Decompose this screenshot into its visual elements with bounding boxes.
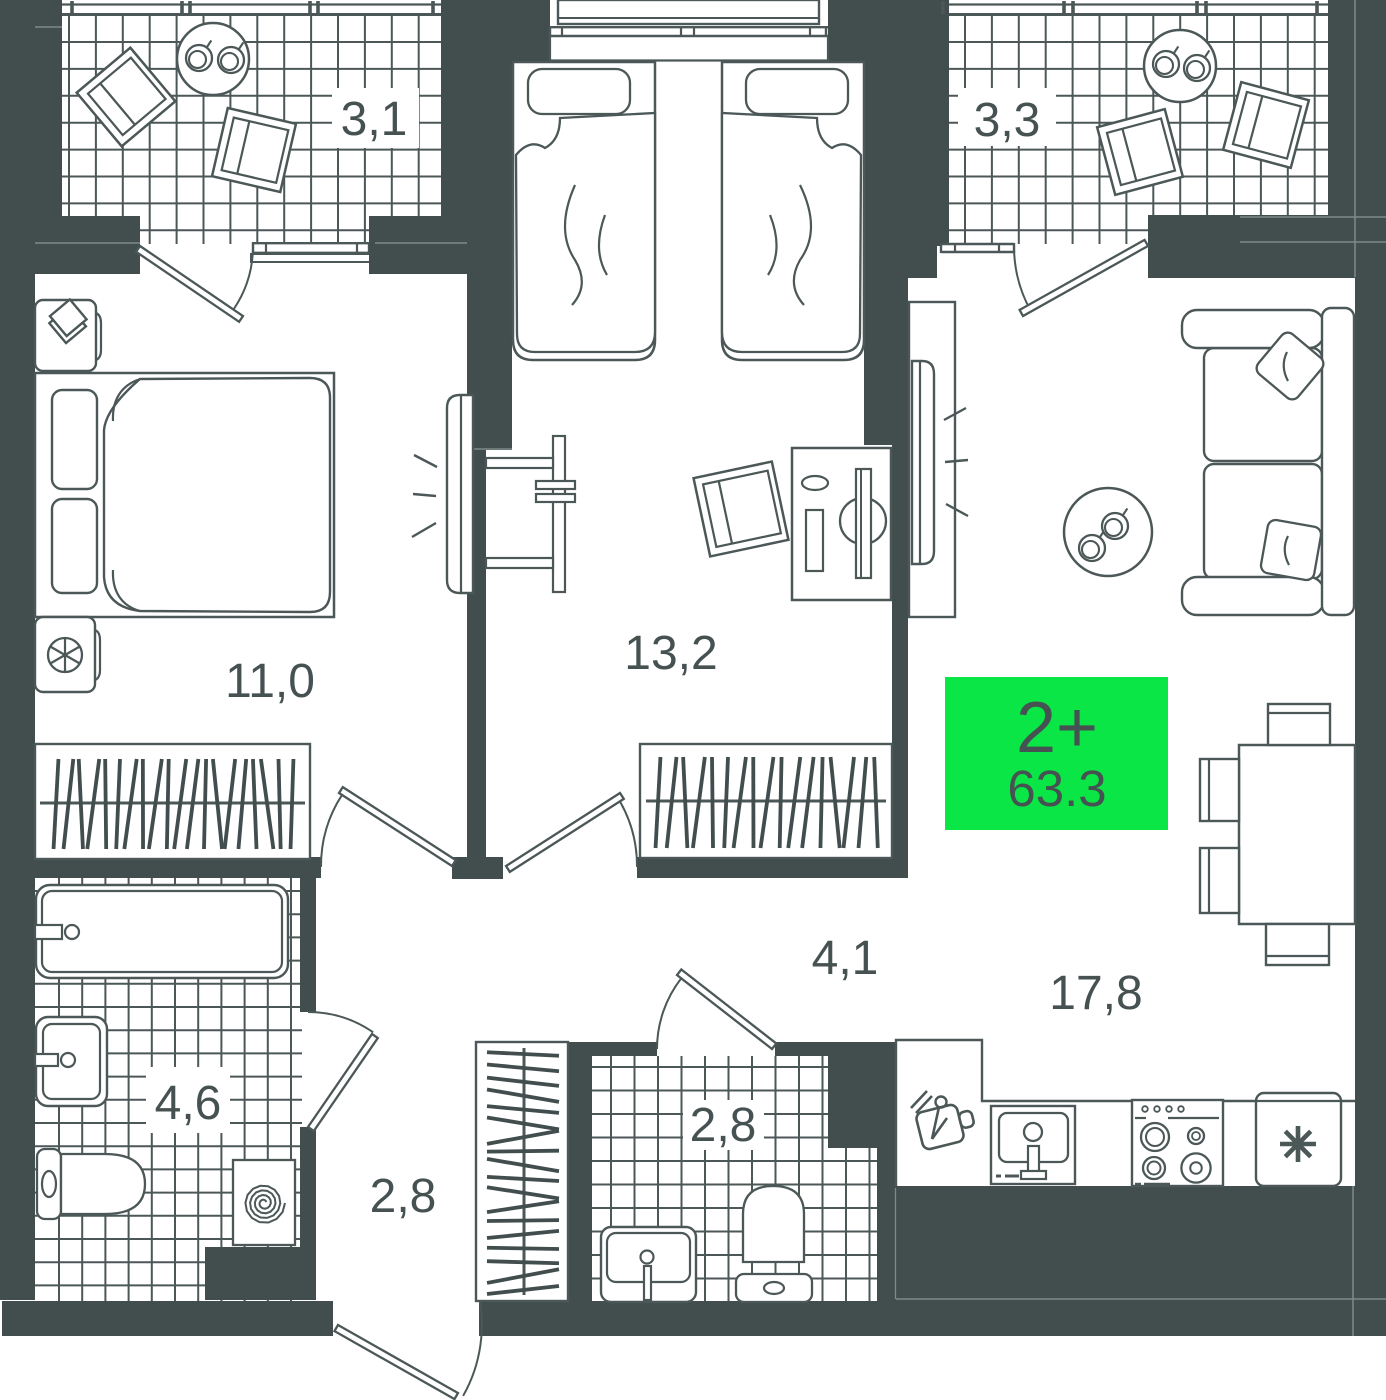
svg-text:13,2: 13,2 [624,627,717,680]
svg-text:17,8: 17,8 [1049,967,1142,1020]
svg-text:2+: 2+ [1016,688,1098,768]
svg-text:3,3: 3,3 [974,94,1041,147]
svg-text:3,1: 3,1 [341,93,408,146]
svg-text:4,1: 4,1 [812,932,879,985]
svg-text:2,8: 2,8 [690,1099,757,1152]
svg-text:63.3: 63.3 [1007,760,1106,817]
svg-text:11,0: 11,0 [225,655,315,708]
svg-text:4,6: 4,6 [155,1077,222,1130]
svg-text:2,8: 2,8 [370,1170,437,1223]
